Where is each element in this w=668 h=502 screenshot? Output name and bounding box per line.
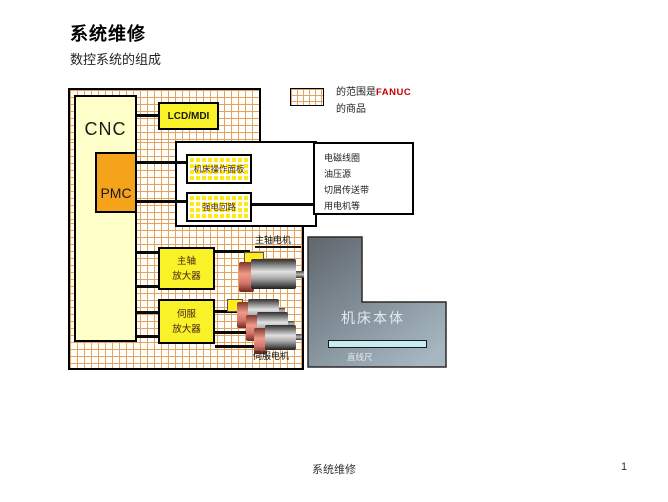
linear-scale-label: 直线尺 bbox=[347, 351, 373, 363]
pmc-block: PMC bbox=[95, 152, 137, 213]
cnc-label: CNC bbox=[76, 119, 135, 140]
line-power-circuit-aux bbox=[252, 203, 313, 206]
legend-prefix: 的范围是 bbox=[336, 87, 376, 98]
lcd-mdi-block: LCD/MDI bbox=[158, 102, 219, 130]
linear-scale-bar bbox=[328, 340, 427, 348]
pmc-label: PMC bbox=[100, 185, 131, 201]
legend-brand: FANUC bbox=[376, 87, 411, 98]
line-cnc-servo-amp-1 bbox=[137, 311, 158, 314]
line-cnc-spindle-amp-2 bbox=[137, 285, 158, 288]
spindle-motor-label: 主轴电机 bbox=[255, 233, 291, 246]
servo-motor-label: 伺服电机 bbox=[253, 349, 289, 362]
servo-amp-label-line1: 伺服 bbox=[177, 307, 196, 322]
machine-body-label: 机床本体 bbox=[341, 308, 405, 328]
page-title: 系统维修 bbox=[70, 20, 146, 46]
fanuc-scope-legend-text: 的范围是FANUC 的商品 bbox=[336, 84, 411, 118]
footer-title: 系统维修 bbox=[0, 461, 668, 477]
aux-item: 电磁线圈 bbox=[324, 150, 412, 166]
legend-suffix: 的商品 bbox=[336, 104, 366, 115]
power-circuit-block: 强电回路 bbox=[186, 192, 252, 222]
cnc-block: CNC bbox=[74, 95, 137, 342]
aux-equipment-box: 电磁线圈 油压源 切屑传送带 用电机等 bbox=[313, 142, 414, 215]
aux-item: 切屑传送带 bbox=[324, 182, 412, 198]
spindle-amp-label-line1: 主轴 bbox=[177, 254, 196, 269]
slide-subtitle: 数控系统的组成 bbox=[70, 49, 161, 68]
spindle-motor-icon bbox=[296, 271, 304, 278]
spindle-motor-icon bbox=[251, 259, 296, 289]
power-circuit-label: 强电回路 bbox=[202, 201, 236, 213]
slide: 系统维修 数控系统的组成 CNC PMC LCD/MDI 机床操作面板 强电回路… bbox=[0, 0, 668, 502]
line-cnc-lcd bbox=[137, 114, 158, 117]
machine-body-shape bbox=[307, 236, 447, 368]
aux-item: 用电机等 bbox=[324, 198, 412, 214]
spindle-motor-underline bbox=[255, 246, 301, 248]
servo-motor-icon bbox=[265, 325, 296, 350]
operation-panel-label: 机床操作面板 bbox=[193, 163, 244, 175]
line-pmc-power-circuit bbox=[137, 200, 186, 203]
fanuc-scope-legend-swatch bbox=[290, 88, 324, 106]
line-cnc-spindle-amp-1 bbox=[137, 251, 158, 254]
line-cnc-servo-amp-2 bbox=[137, 335, 158, 338]
aux-item: 油压源 bbox=[324, 166, 412, 182]
page-number: 1 bbox=[621, 461, 627, 473]
operation-panel-block: 机床操作面板 bbox=[186, 154, 252, 184]
servo-amplifier-block: 伺服 放大器 bbox=[158, 299, 215, 344]
spindle-amplifier-block: 主轴 放大器 bbox=[158, 247, 215, 290]
line-pmc-operation-panel bbox=[137, 161, 186, 164]
servo-motor-icon bbox=[296, 334, 302, 340]
servo-amp-label-line2: 放大器 bbox=[172, 322, 201, 337]
lcd-mdi-label: LCD/MDI bbox=[168, 111, 210, 122]
spindle-amp-label-line2: 放大器 bbox=[172, 269, 201, 284]
